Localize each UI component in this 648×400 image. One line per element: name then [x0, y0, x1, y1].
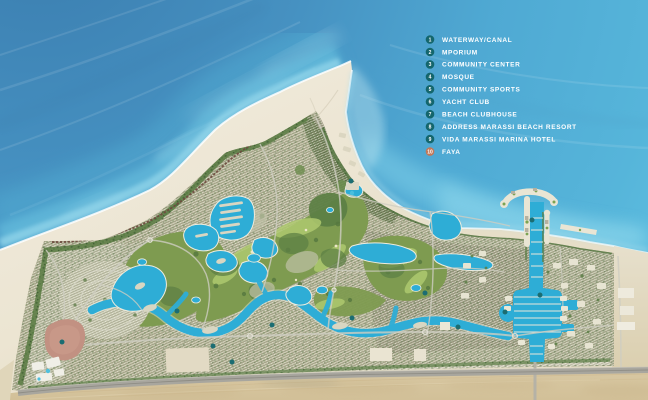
svg-text:WATERWAY/CANAL: WATERWAY/CANAL: [442, 37, 512, 44]
svg-text:9: 9: [429, 137, 432, 143]
svg-text:3: 3: [429, 62, 432, 68]
svg-text:MOSQUE: MOSQUE: [442, 74, 475, 81]
svg-text:7: 7: [429, 112, 432, 118]
svg-text:VIDA MARASSI MARINA HOTEL: VIDA MARASSI MARINA HOTEL: [442, 136, 556, 143]
svg-text:4: 4: [429, 75, 432, 81]
svg-text:MPORIUM: MPORIUM: [442, 49, 478, 56]
svg-text:8: 8: [429, 125, 432, 131]
svg-text:COMMUNITY SPORTS: COMMUNITY SPORTS: [442, 87, 520, 94]
svg-text:COMMUNITY CENTER: COMMUNITY CENTER: [442, 62, 520, 69]
svg-text:ADDRESS MARASSI BEACH RESORT: ADDRESS MARASSI BEACH RESORT: [442, 124, 577, 131]
svg-text:10: 10: [427, 149, 433, 155]
svg-text:5: 5: [429, 87, 432, 93]
svg-text:BEACH CLUBHOUSE: BEACH CLUBHOUSE: [442, 112, 517, 119]
svg-text:FAYA: FAYA: [442, 149, 461, 156]
svg-text:1: 1: [429, 37, 432, 43]
svg-text:YACHT CLUB: YACHT CLUB: [442, 99, 490, 106]
svg-text:2: 2: [429, 50, 432, 56]
svg-text:6: 6: [429, 100, 432, 106]
